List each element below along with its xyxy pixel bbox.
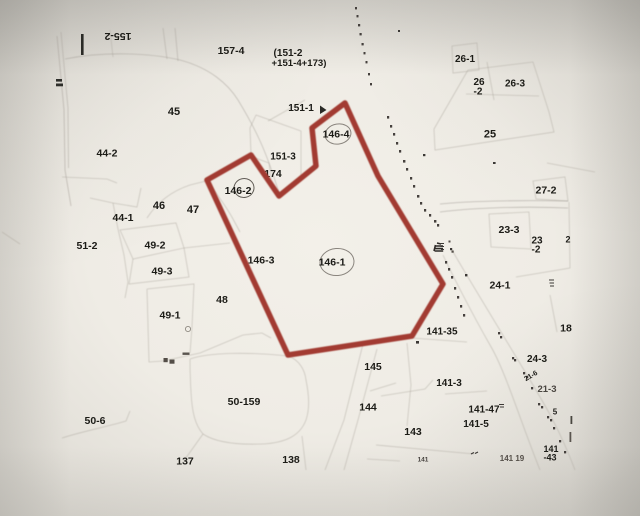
svg-text:50-6: 50-6: [84, 415, 105, 427]
svg-text:141: 141: [418, 457, 429, 464]
svg-text:45: 45: [168, 106, 180, 118]
svg-text:47: 47: [187, 204, 199, 216]
svg-text:151-3: 151-3: [270, 152, 296, 163]
svg-text:-2: -2: [474, 87, 483, 98]
svg-text:49-3: 49-3: [151, 266, 172, 278]
svg-text:27-2: 27-2: [535, 185, 556, 197]
svg-text:46: 46: [153, 200, 165, 212]
svg-text:141 19: 141 19: [500, 454, 525, 463]
svg-text:44-1: 44-1: [112, 212, 133, 224]
svg-text:145: 145: [364, 361, 382, 373]
svg-text:26-3: 26-3: [505, 79, 525, 90]
svg-text:146-3: 146-3: [248, 255, 275, 267]
svg-text:151-1: 151-1: [288, 103, 314, 114]
svg-text:24-3: 24-3: [527, 354, 547, 365]
svg-text:141-5: 141-5: [463, 419, 489, 430]
svg-text:141-3: 141-3: [436, 378, 462, 389]
svg-text:5: 5: [553, 408, 558, 417]
svg-text:51-2: 51-2: [76, 240, 97, 252]
svg-text:146-1: 146-1: [319, 257, 346, 269]
svg-text:48: 48: [216, 294, 228, 306]
svg-text:2: 2: [565, 235, 570, 245]
svg-text:49-2: 49-2: [144, 240, 165, 252]
svg-text:138: 138: [282, 454, 300, 466]
svg-text:155-2: 155-2: [104, 30, 131, 42]
svg-text:25: 25: [484, 129, 496, 141]
svg-text:146-4: 146-4: [323, 129, 350, 141]
svg-text:-43: -43: [543, 453, 556, 463]
svg-text:157-4: 157-4: [218, 45, 245, 57]
svg-text:50-159: 50-159: [228, 396, 261, 408]
svg-text:137: 137: [176, 456, 194, 468]
svg-text:49-1: 49-1: [159, 310, 180, 322]
svg-text:-2: -2: [532, 245, 541, 256]
svg-text:26-1: 26-1: [455, 54, 475, 65]
svg-text:141-35: 141-35: [426, 327, 458, 338]
svg-text:44-2: 44-2: [96, 148, 117, 160]
svg-text:146-2: 146-2: [225, 185, 252, 197]
svg-text:18: 18: [560, 323, 572, 335]
svg-text:23-3: 23-3: [498, 224, 519, 236]
svg-text:24-1: 24-1: [489, 280, 510, 292]
svg-text:+151-4+173): +151-4+173): [272, 58, 327, 69]
svg-text:143: 143: [404, 426, 422, 438]
svg-text:21-3: 21-3: [537, 384, 556, 395]
svg-text:144: 144: [359, 402, 377, 414]
svg-text:141-47: 141-47: [468, 405, 500, 416]
